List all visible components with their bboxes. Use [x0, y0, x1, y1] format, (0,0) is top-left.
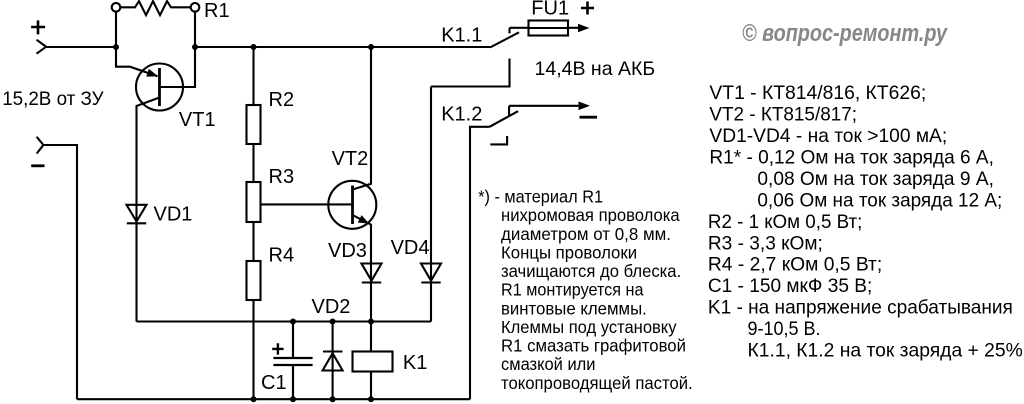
svg-text:VD4: VD4: [391, 237, 430, 259]
svg-text:R2: R2: [269, 89, 295, 111]
svg-text:K1 - на напряжение срабатывани: K1 - на напряжение срабатывания: [708, 298, 1013, 319]
svg-text:*) - материал R1: *) - материал R1: [478, 187, 603, 207]
svg-text:R1 монтируется на: R1 монтируется на: [501, 280, 644, 300]
svg-text:смазкой или: смазкой или: [501, 354, 596, 374]
svg-text:VT2 - КТ815/817;: VT2 - КТ815/817;: [709, 105, 857, 126]
svg-text:VD3: VD3: [328, 240, 367, 262]
svg-text:R2 - 1 кОм 0,5 Вт;: R2 - 1 кОм 0,5 Вт;: [708, 212, 863, 233]
svg-text:винтовые клеммы.: винтовые клеммы.: [501, 298, 647, 318]
svg-text:C1 - 150 мкФ 35 В;: C1 - 150 мкФ 35 В;: [708, 276, 872, 297]
svg-text:0,08 Ом на ток заряда 9 А,: 0,08 Ом на ток заряда 9 А,: [757, 169, 994, 190]
svg-text:R3 - 3,3 кОм;: R3 - 3,3 кОм;: [708, 233, 823, 254]
svg-text:R1: R1: [204, 0, 230, 22]
svg-text:R1 смазать графитовой: R1 смазать графитовой: [501, 336, 686, 356]
svg-text:FU1: FU1: [531, 0, 569, 20]
svg-text:Концы проволоки: Концы проволоки: [501, 242, 637, 262]
svg-text:R3: R3: [269, 166, 295, 188]
svg-text:VT1 - КТ814/816, КТ626;: VT1 - КТ814/816, КТ626;: [709, 83, 926, 104]
svg-text:0,06 Ом на ток заряда 12 А;: 0,06 Ом на ток заряда 12 А;: [757, 190, 1002, 211]
svg-text:Клеммы под установку: Клеммы под установку: [501, 317, 677, 337]
svg-text:15,2В от ЗУ: 15,2В от ЗУ: [2, 88, 104, 110]
svg-text:14,4В на АКБ: 14,4В на АКБ: [535, 58, 656, 80]
svg-text:R4 - 2,7 кОм 0,5 Вт;: R4 - 2,7 кОм 0,5 Вт;: [708, 255, 882, 276]
svg-text:© вопрос-ремонт.ру: © вопрос-ремонт.ру: [742, 20, 948, 47]
svg-text:VT2: VT2: [332, 148, 369, 170]
svg-text:VD1-VD4 - на ток >100 мА;: VD1-VD4 - на ток >100 мА;: [709, 126, 947, 147]
svg-text:K1.1: K1.1: [441, 25, 482, 47]
svg-text:K1: K1: [403, 352, 427, 374]
svg-text:диаметром от 0,8 мм.: диаметром от 0,8 мм.: [501, 224, 671, 244]
svg-text:нихромовая проволока: нихромовая проволока: [501, 205, 680, 225]
svg-text:C1: C1: [261, 372, 287, 394]
svg-text:9-10,5 В.: 9-10,5 В.: [748, 319, 821, 340]
svg-text:K1.2: K1.2: [441, 103, 482, 125]
svg-text:VT1: VT1: [179, 109, 216, 131]
svg-text:R1* - 0,12 Ом на ток заряда 6: R1* - 0,12 Ом на ток заряда 6 А,: [709, 148, 994, 169]
svg-text:токопроводящей пастой.: токопроводящей пастой.: [501, 373, 693, 393]
svg-text:зачищаются до блеска.: зачищаются до блеска.: [501, 261, 681, 281]
svg-text:VD2: VD2: [312, 296, 351, 318]
svg-text:VD1: VD1: [154, 204, 193, 226]
svg-text:К1.1, К1.2 на ток заряда + 25%: К1.1, К1.2 на ток заряда + 25%: [748, 341, 1023, 362]
svg-text:R4: R4: [269, 244, 295, 266]
